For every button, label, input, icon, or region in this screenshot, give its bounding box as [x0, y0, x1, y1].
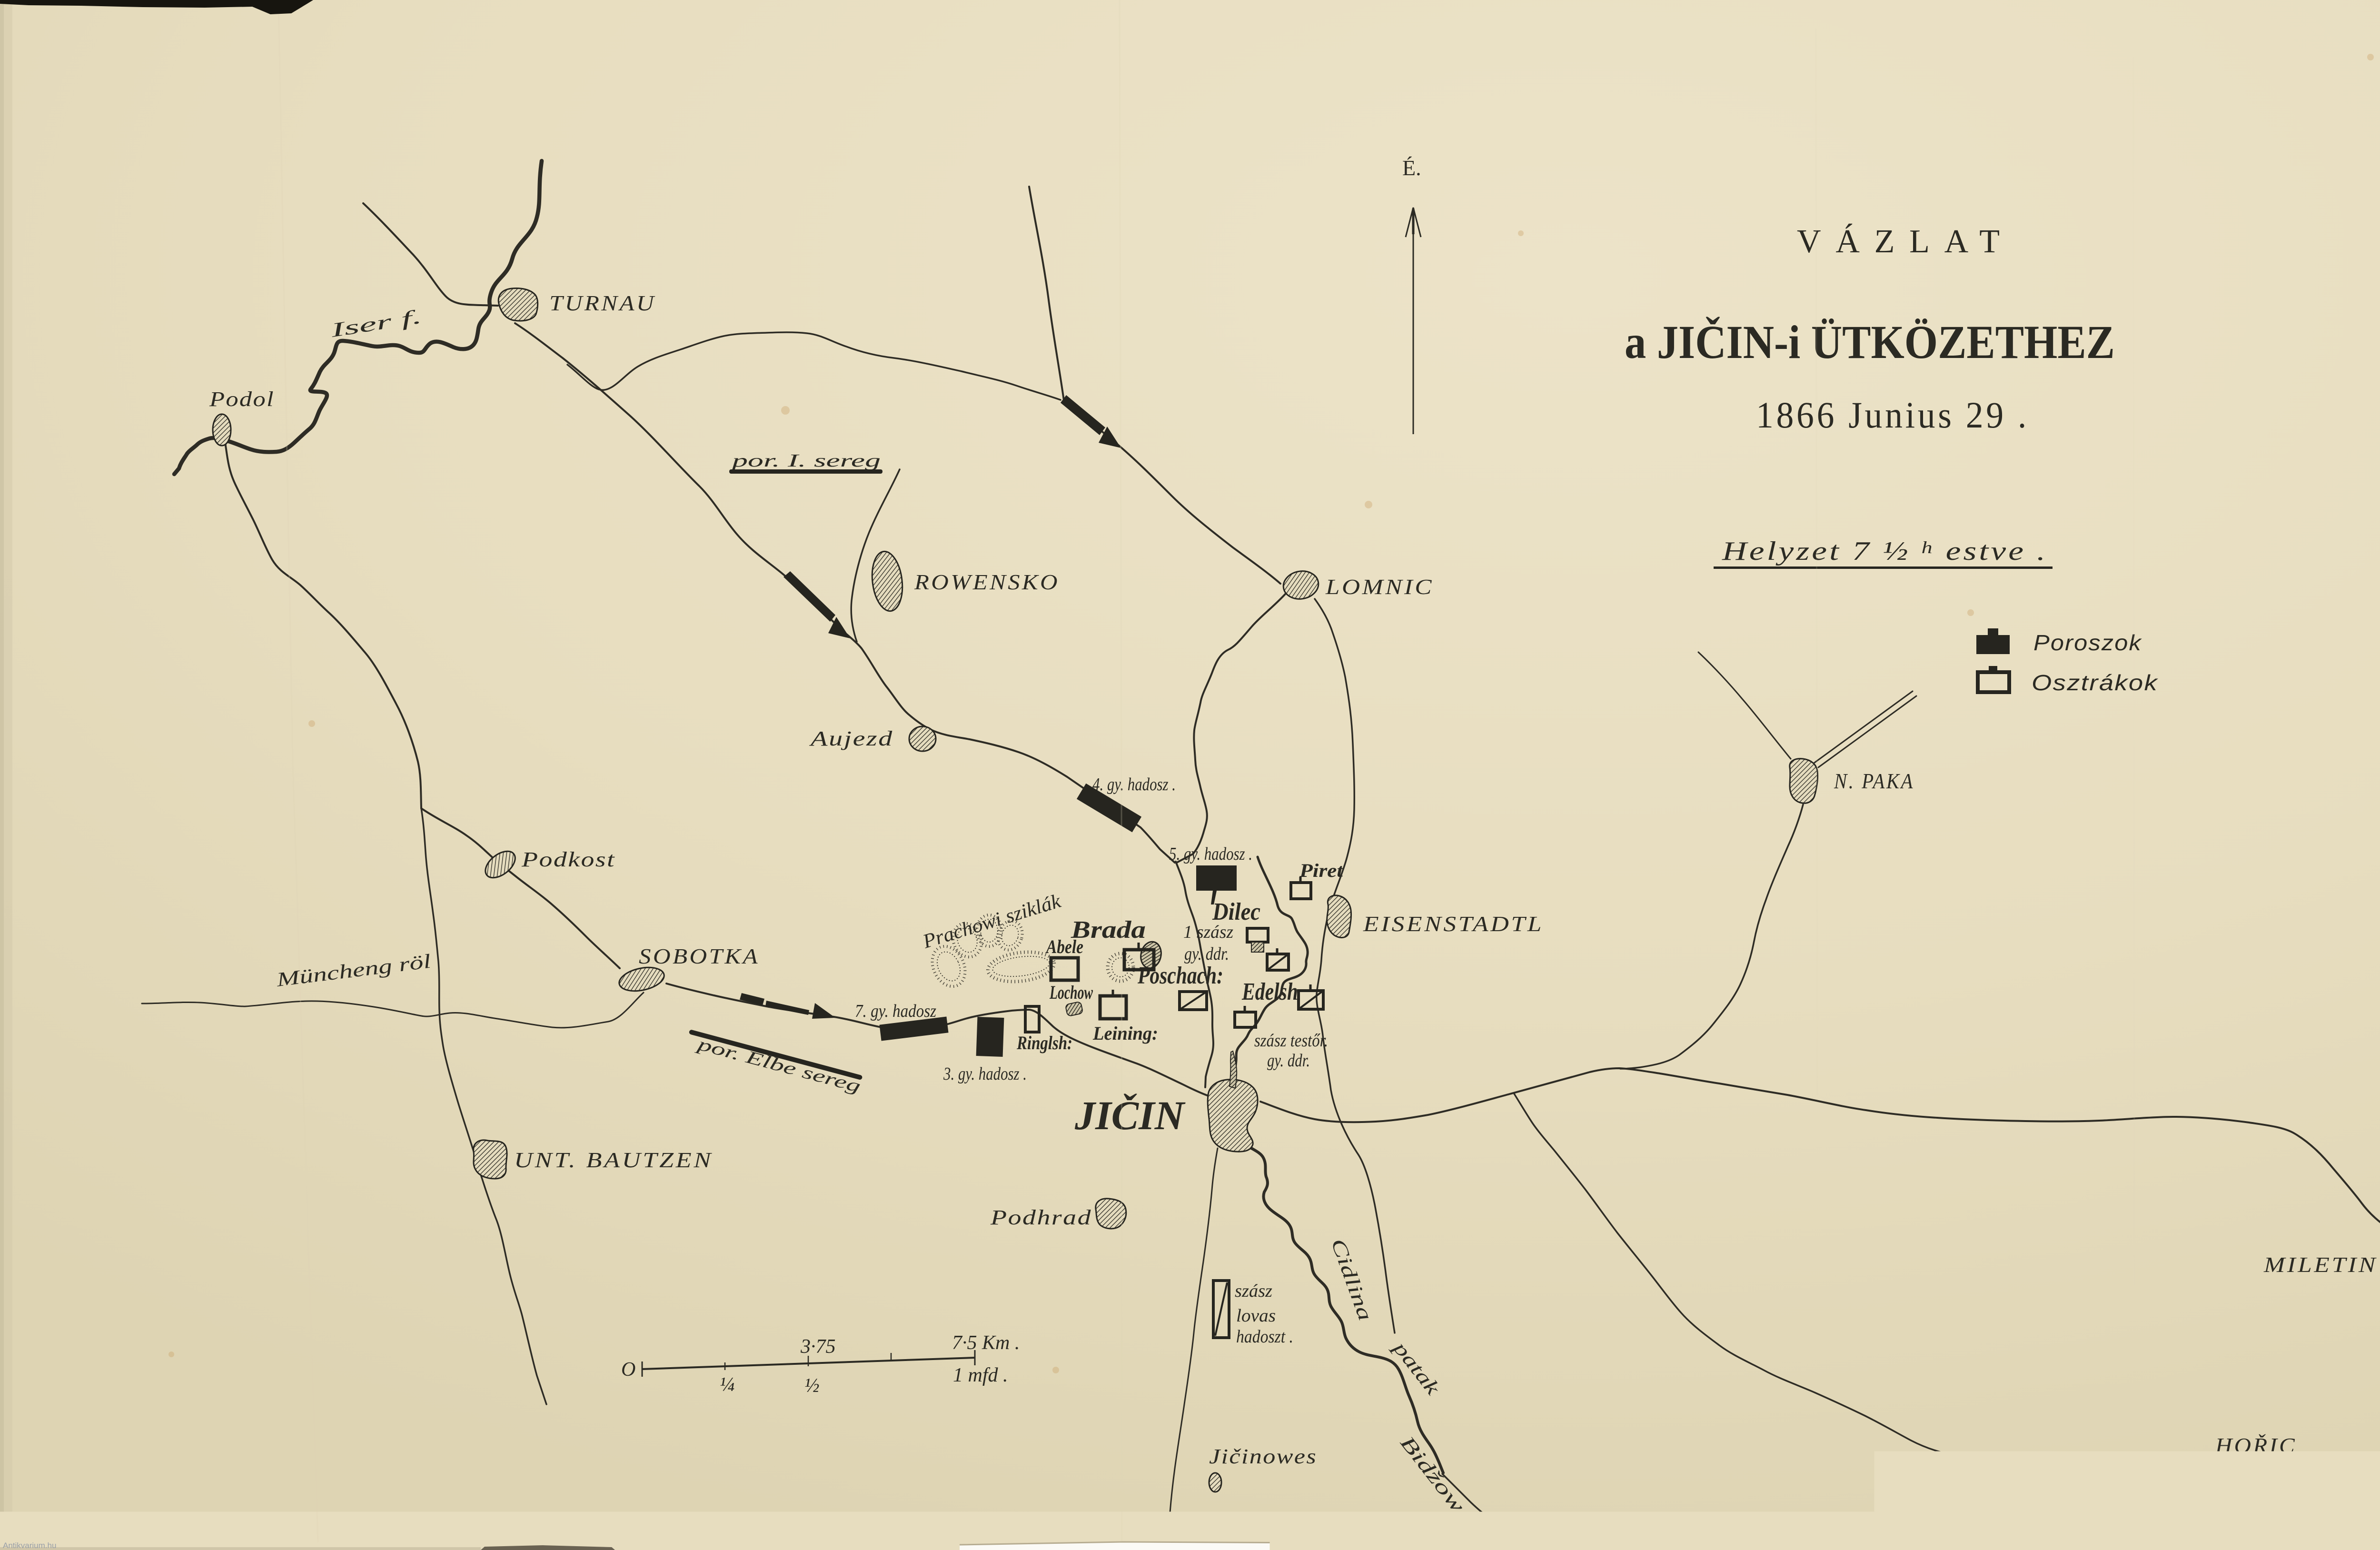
svg-text:Piret: Piret — [1299, 860, 1344, 881]
svg-text:7. gy. hadosz: 7. gy. hadosz — [855, 1001, 936, 1021]
svg-text:Leining:: Leining: — [1092, 1023, 1158, 1044]
svg-text:Antikvarium.hu: Antikvarium.hu — [3, 1541, 56, 1550]
svg-text:EISENSTADTL: EISENSTADTL — [1363, 912, 1544, 936]
svg-text:TURNAU: TURNAU — [549, 291, 656, 315]
svg-text:O: O — [621, 1359, 635, 1381]
svg-text:Dilec: Dilec — [1212, 898, 1260, 925]
svg-text:Abele: Abele — [1045, 936, 1083, 957]
svg-text:Aujezd: Aujezd — [809, 727, 893, 750]
svg-text:szász testőr.: szász testőr. — [1254, 1031, 1328, 1051]
svg-text:lovas: lovas — [1236, 1306, 1276, 1326]
svg-text:5. gy. hadosz .: 5. gy. hadosz . — [1169, 844, 1252, 864]
svg-text:szász: szász — [1235, 1281, 1272, 1301]
svg-text:1866 Junius 29 .: 1866 Junius 29 . — [1756, 394, 2029, 436]
svg-text:Helyzet 7 ½ h estve .: Helyzet 7 ½ h estve . — [1722, 537, 2048, 566]
svg-text:7·5 Km .: 7·5 Km . — [952, 1332, 1020, 1354]
svg-text:ROWENSKO: ROWENSKO — [914, 570, 1060, 594]
svg-text:1 mfd .: 1 mfd . — [953, 1364, 1008, 1386]
svg-text:JIČIN: JIČIN — [1074, 1093, 1186, 1138]
svg-text:3·75: 3·75 — [800, 1336, 836, 1358]
svg-text:1 szász: 1 szász — [1183, 922, 1233, 942]
svg-text:Podkost: Podkost — [521, 848, 615, 871]
svg-text:É.: É. — [1402, 156, 1421, 180]
svg-text:Edelsh: Edelsh — [1241, 978, 1298, 1005]
svg-text:Osztrákok: Osztrákok — [2032, 670, 2158, 695]
svg-text:Poroszok: Poroszok — [2033, 630, 2142, 655]
svg-text:½: ½ — [804, 1375, 820, 1397]
svg-text:HOŘIC: HOŘIC — [2215, 1433, 2297, 1458]
svg-text:Jičinowes: Jičinowes — [1209, 1445, 1317, 1468]
svg-text:UNT. BAUTZEN: UNT. BAUTZEN — [514, 1148, 713, 1172]
svg-text:MILETIN: MILETIN — [2263, 1252, 2378, 1277]
svg-text:Ringlsh:: Ringlsh: — [1016, 1032, 1072, 1053]
svg-text:gy. ddr.: gy. ddr. — [1267, 1051, 1310, 1071]
svg-text:gy. ddr.: gy. ddr. — [1184, 944, 1229, 964]
svg-text:Podol: Podol — [209, 387, 275, 411]
svg-text:LOMNIC: LOMNIC — [1325, 575, 1434, 599]
svg-text:Podhrad: Podhrad — [990, 1206, 1092, 1229]
svg-text:a JIČIN-i ÜTKÖZETHEZ: a JIČIN-i ÜTKÖZETHEZ — [1625, 316, 2115, 368]
svg-text:3. gy. hadosz .: 3. gy. hadosz . — [943, 1064, 1027, 1084]
svg-text:Lochow: Lochow — [1049, 982, 1093, 1003]
svg-text:4. gy. hadosz .: 4. gy. hadosz . — [1092, 775, 1176, 795]
svg-text:hadoszt .: hadoszt . — [1236, 1327, 1293, 1347]
svg-text:N. PAKA: N. PAKA — [1834, 769, 1914, 793]
svg-text:VÁZLAT: VÁZLAT — [1797, 223, 2012, 260]
svg-text:¼: ¼ — [720, 1374, 735, 1396]
svg-text:SOBOTKA: SOBOTKA — [639, 944, 760, 968]
svg-text:por. I. sereg: por. I. sereg — [730, 451, 881, 471]
